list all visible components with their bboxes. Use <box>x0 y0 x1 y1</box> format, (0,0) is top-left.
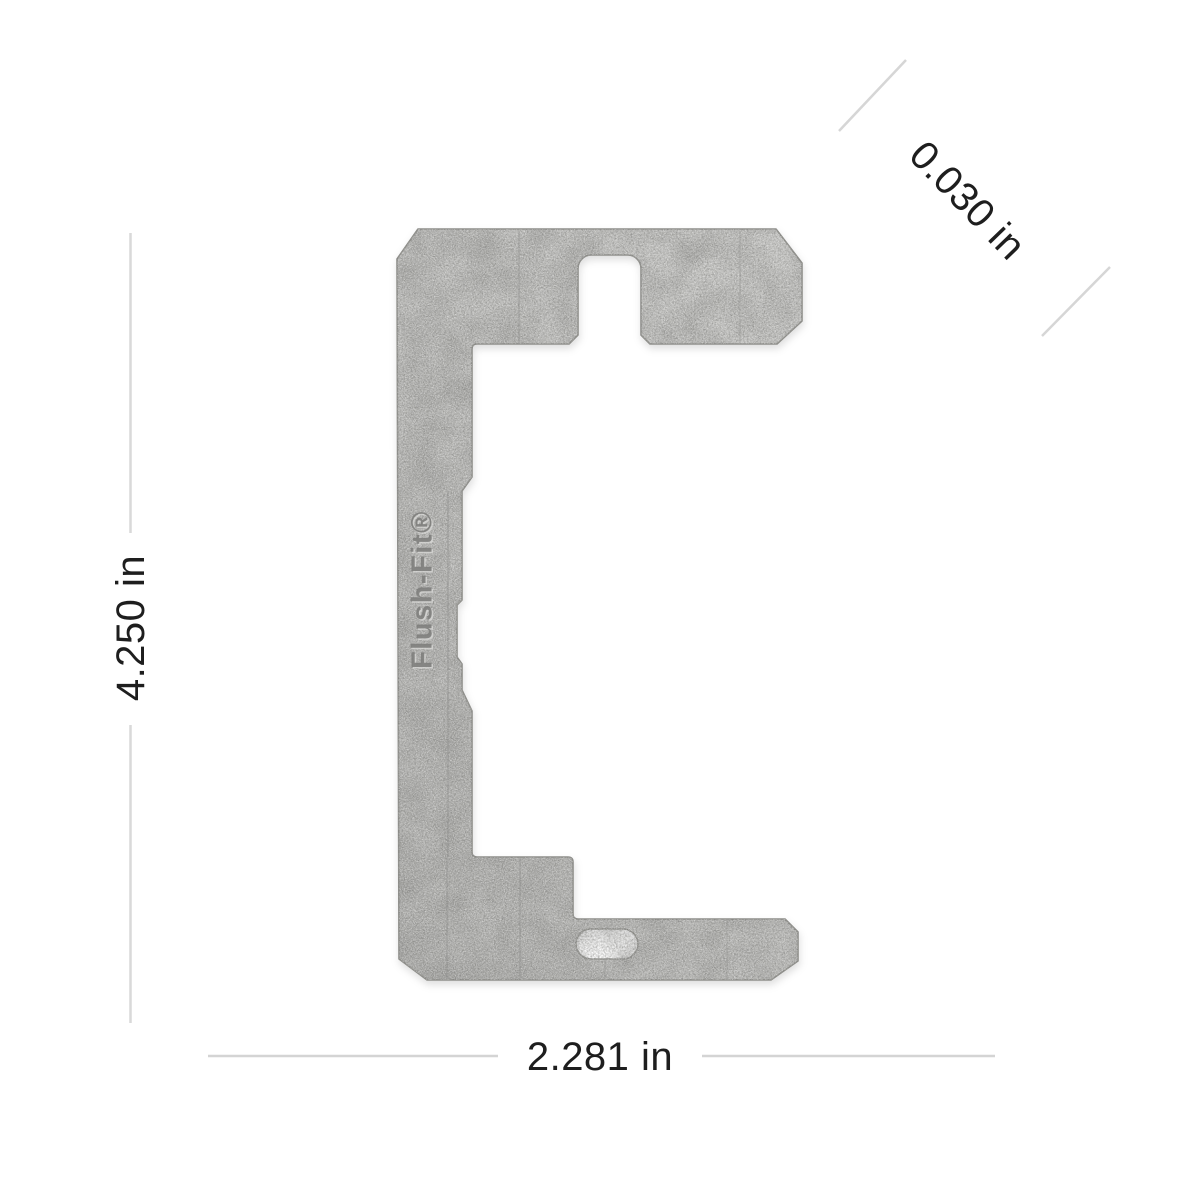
width-dimension-label: 2.281 in <box>527 1035 673 1079</box>
thickness-dimension-line-lower <box>1042 267 1110 336</box>
height-dimension: 4.250 in <box>109 233 153 1023</box>
brand-stamp: Flush-Fit® Flush-Fit® <box>407 510 441 670</box>
product-dimension-diagram: Flush-Fit® Flush-Fit® 4.250 in 2.281 in … <box>0 0 1200 1200</box>
width-dimension: 2.281 in <box>208 1035 995 1079</box>
brand-stamp-text: Flush-Fit® <box>407 510 439 669</box>
diagram-canvas: Flush-Fit® Flush-Fit® 4.250 in 2.281 in … <box>0 0 1200 1200</box>
thickness-dimension: 0.030 in <box>839 60 1110 336</box>
height-dimension-label: 4.250 in <box>109 555 153 701</box>
thickness-dimension-line-upper <box>839 60 906 131</box>
thickness-dimension-label: 0.030 in <box>901 133 1034 269</box>
plate-texture <box>380 215 820 1000</box>
